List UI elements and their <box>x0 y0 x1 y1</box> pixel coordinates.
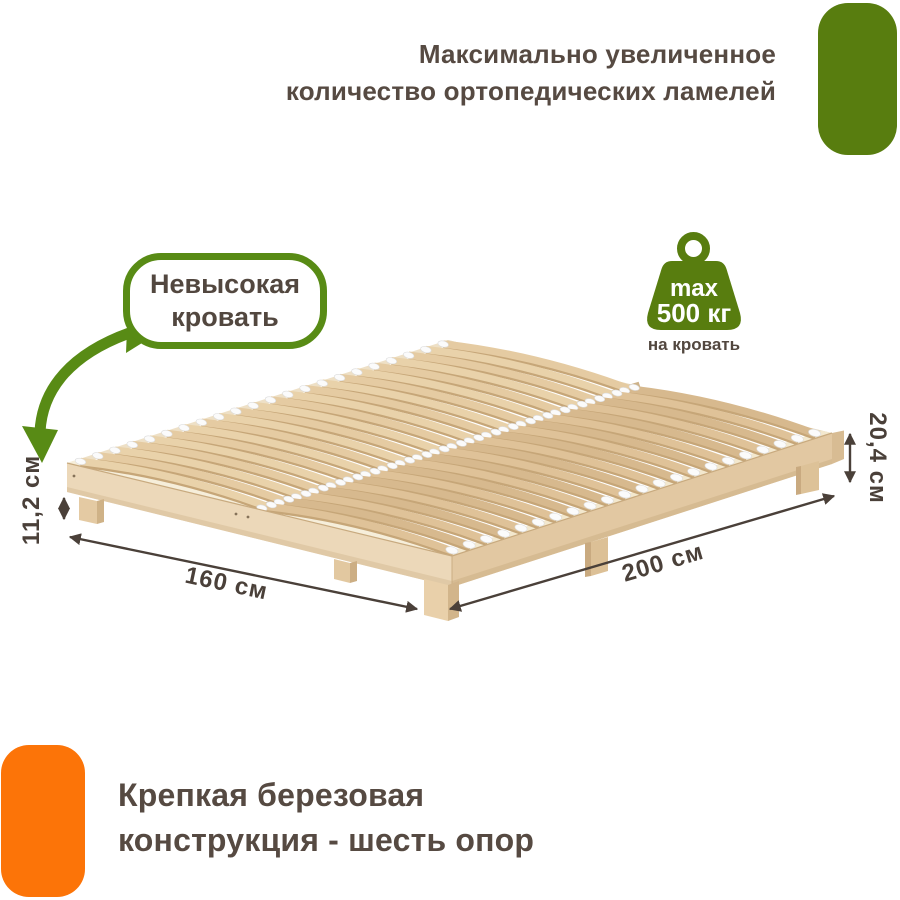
bottom-heading: Крепкая березовая конструкция - шесть оп… <box>118 773 534 863</box>
bed-frame <box>67 340 844 621</box>
weight-caption: на кровать <box>648 335 740 354</box>
bed-slats <box>75 340 822 555</box>
callout-line1: Невысокая <box>150 268 300 301</box>
dimension-label-frame-height: 20,4 см <box>864 412 891 503</box>
bed-illustration-svg: 11,2 см 20,4 см 160 см 200 см max 500 кг… <box>0 0 900 900</box>
dimension-label-leg-height: 11,2 см <box>18 455 45 545</box>
bottom-heading-line1: Крепкая березовая <box>118 773 534 818</box>
callout-bubble: Невысокая кровать <box>123 253 327 349</box>
weight-value-label: 500 кг <box>657 298 732 328</box>
product-infographic: Максимально увеличенное количество ортоп… <box>0 0 900 900</box>
bottom-heading-line2: конструкция - шесть опор <box>118 818 534 863</box>
callout-line2: кровать <box>171 301 279 334</box>
